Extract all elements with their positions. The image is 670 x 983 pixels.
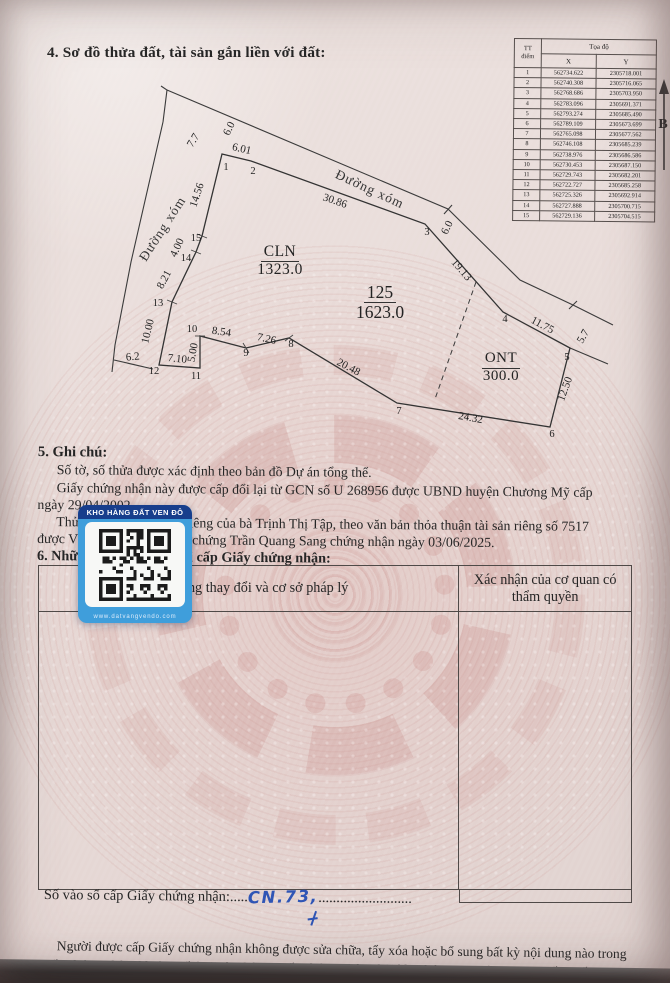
qr-code-modules <box>99 529 171 601</box>
qr-banner-text: KHO HÀNG ĐẤT VEN ĐÔ <box>78 505 192 519</box>
leader-dots: ..... <box>230 889 248 905</box>
plot-area: 1623.0 <box>341 303 419 321</box>
coord-header-group: Tọa độ <box>541 39 656 55</box>
coord-row: 15562729.1362305704.515 <box>513 210 655 222</box>
changes-col2-header: Xác nhận của cơ quan có thẩm quyền <box>459 566 631 611</box>
zone-cln-code: CLN <box>261 244 300 262</box>
handwriting-flourish <box>306 911 320 927</box>
coordinate-table: TT điểm Tọa độ X Y 1562734.6222305718.00… <box>512 38 657 223</box>
changes-table-body <box>39 612 631 889</box>
zone-ont-area: 300.0 <box>469 369 533 385</box>
zone-ont-code: ONT <box>482 351 520 369</box>
note-line5-visible: chứng Trần Quang Sang chứng nhận ngày 03… <box>192 532 495 552</box>
zone-label-ont: ONT 300.0 <box>469 351 533 385</box>
registry-entry-line: Số vào sổ cấp Giấy chứng nhận:.....CN.73… <box>44 884 412 908</box>
changes-col2-cell <box>459 612 631 889</box>
handwritten-registry-number: CN.73, <box>248 887 319 908</box>
coord-table-body: 1562734.6222305718.0012562740.3082305716… <box>513 68 657 223</box>
coord-header-tt: TT điểm <box>514 39 541 68</box>
table-right-extension <box>459 889 632 903</box>
qr-watermark-card: KHO HÀNG ĐẤT VEN ĐÔ www.datvangvendo.com <box>78 505 192 623</box>
changes-col1-cell <box>39 612 459 889</box>
registry-entry-label: Số vào sổ cấp Giấy chứng nhận: <box>44 887 230 905</box>
qr-code <box>85 522 185 607</box>
zone-label-cln: CLN 1323.0 <box>248 244 312 279</box>
leader-dots: .......................... <box>318 890 412 907</box>
plot-number: 125 <box>364 283 396 303</box>
coord-header-x: X <box>541 54 596 69</box>
qr-url-text: www.datvangvendo.com <box>78 614 192 620</box>
section4-title: 4. Sơ đồ thửa đất, tài sản gắn liền với … <box>47 44 326 62</box>
zone-label-plot: 125 1623.0 <box>341 283 419 322</box>
zone-cln-area: 1323.0 <box>248 262 312 278</box>
scanned-certificate-page: 4. Sơ đồ thửa đất, tài sản gắn liền với … <box>0 0 670 983</box>
coord-header-y: Y <box>596 54 656 69</box>
